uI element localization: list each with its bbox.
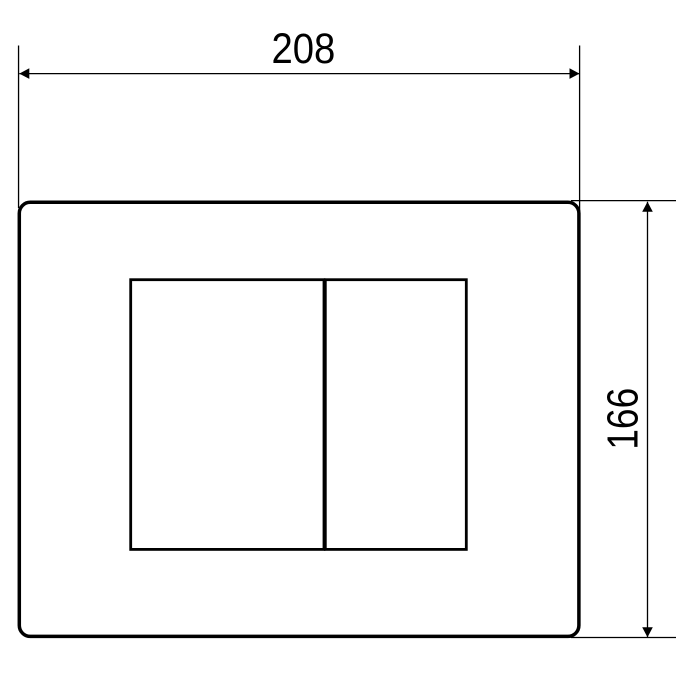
svg-text:166: 166 — [598, 388, 648, 450]
svg-text:208: 208 — [271, 24, 335, 73]
